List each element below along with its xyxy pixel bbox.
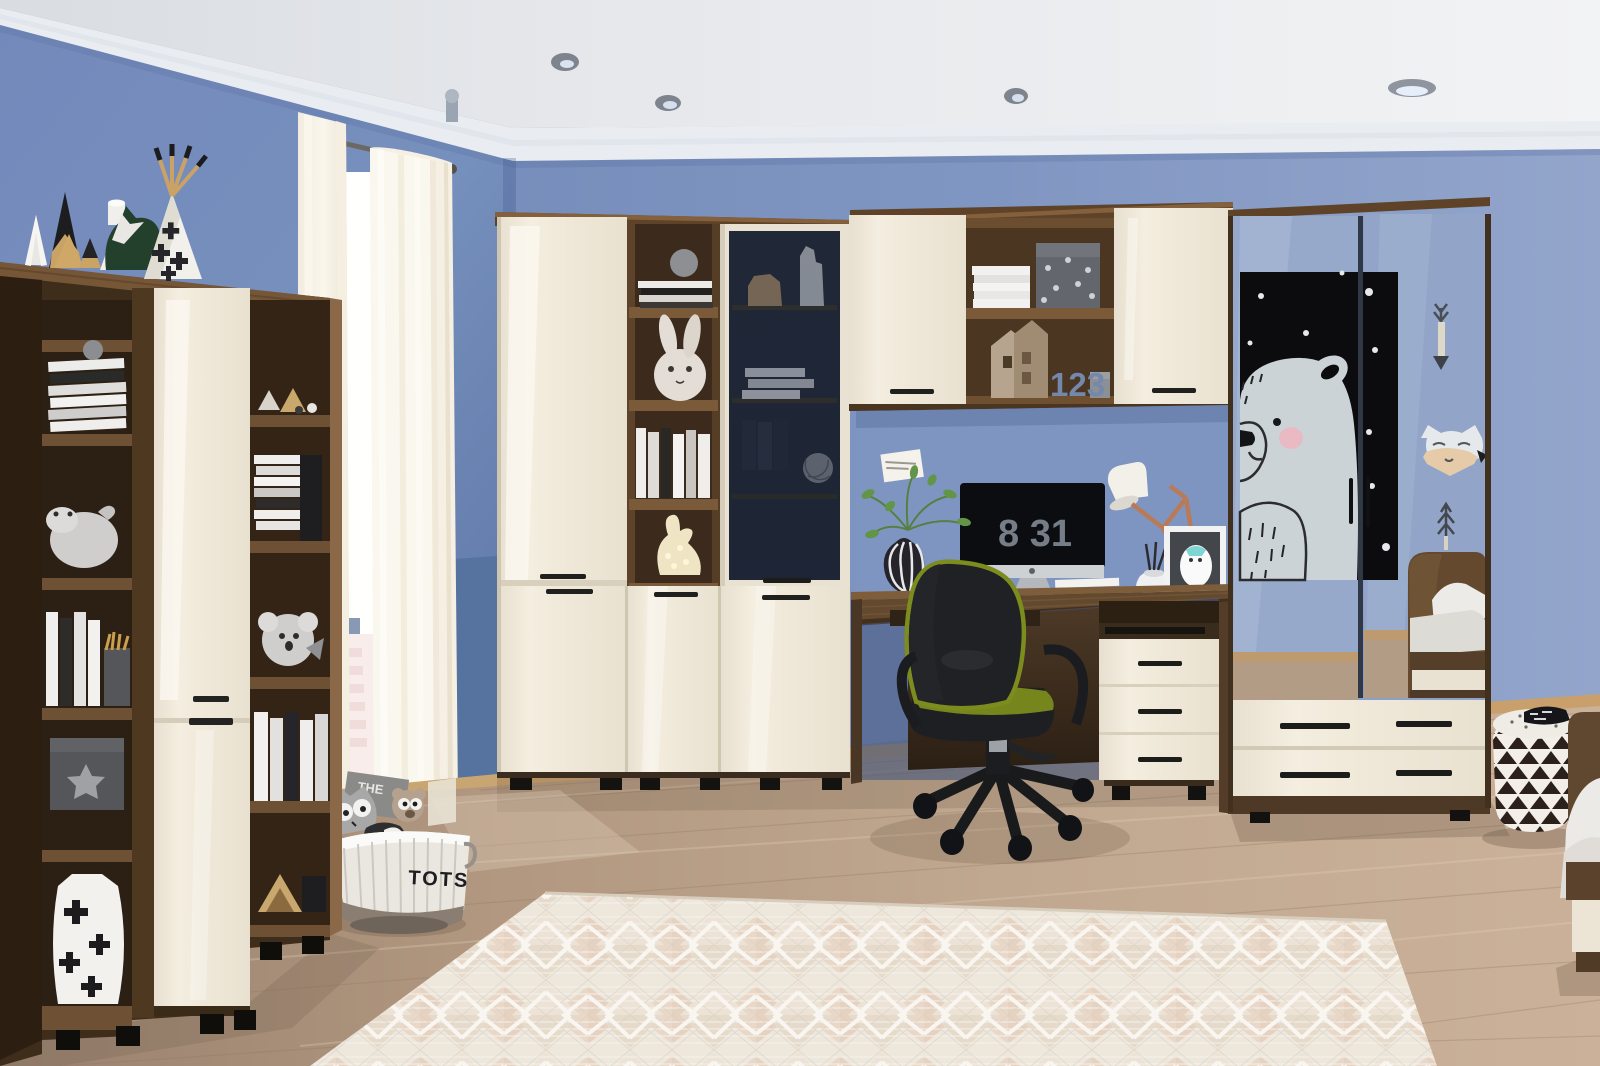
svg-text:8 31: 8 31 — [998, 513, 1072, 555]
svg-text:TOTS: TOTS — [408, 867, 470, 892]
svg-text:123: 123 — [1050, 366, 1105, 403]
